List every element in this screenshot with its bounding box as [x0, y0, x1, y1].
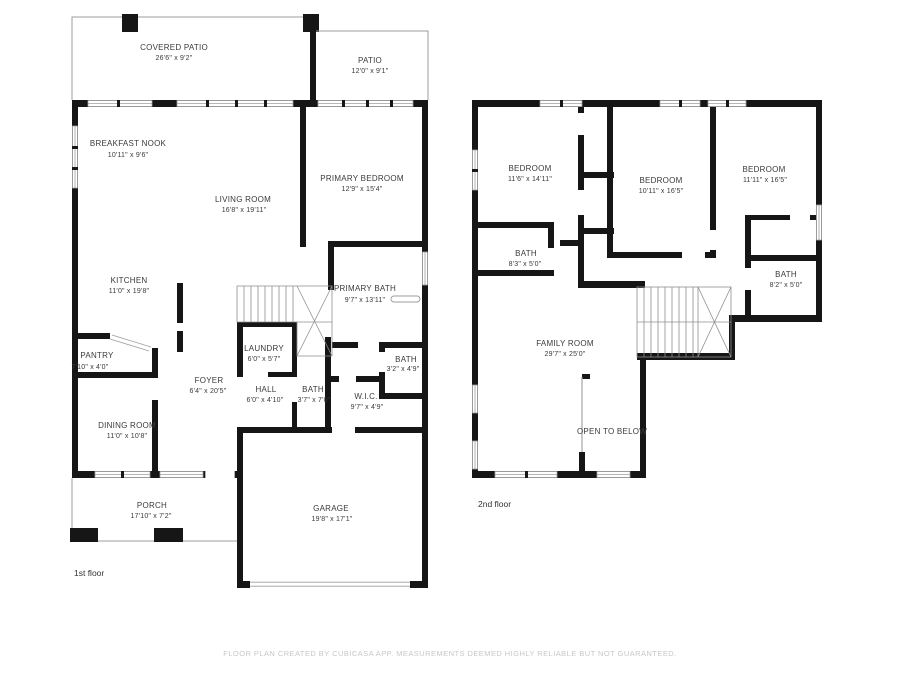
- room-dims-laundry: 6'0" x 5'7": [248, 356, 281, 363]
- room-dims-patio: 12'0" x 9'1": [352, 68, 389, 75]
- room-label-bath-right: BATH: [775, 270, 797, 279]
- porch-post: [154, 528, 183, 542]
- room-dims-family-room: 29'7" x 25'0": [545, 351, 586, 358]
- room-label-porch: PORCH: [137, 501, 167, 510]
- room-label-open-to-below: OPEN TO BELOW: [577, 427, 647, 436]
- footer-disclaimer: FLOOR PLAN CREATED BY CUBICASA APP. MEAS…: [223, 649, 676, 658]
- room-label-garage: GARAGE: [313, 504, 349, 513]
- room-dims-bath-left: 8'3" x 5'0": [509, 261, 542, 268]
- room-label-foyer: FOYER: [195, 376, 224, 385]
- room-dims-porch: 17'10" x 7'2": [131, 513, 172, 520]
- room-label-bedroom-mid: BEDROOM: [639, 176, 682, 185]
- stairs-second-floor: [637, 287, 731, 357]
- room-label-bath-left: BATH: [515, 249, 537, 258]
- second-floor-label: 2nd floor: [478, 499, 511, 509]
- room-dims-primary-bath: 9'7" x 13'11": [345, 297, 386, 304]
- room-label-living-room: LIVING ROOM: [215, 195, 271, 204]
- floor-plan-canvas: COVERED PATIO 26'6" x 9'2" PATIO 12'0" x…: [0, 0, 900, 675]
- room-dims-small-bath: 3'2" x 4'9": [387, 366, 420, 373]
- pantry-door: [110, 335, 151, 351]
- room-label-small-bath: BATH: [395, 355, 417, 364]
- room-label-pantry: PANTRY: [80, 351, 114, 360]
- shower-fixture: [391, 296, 420, 302]
- porch-outline: [70, 478, 237, 542]
- patio-post: [122, 14, 138, 32]
- room-label-bedroom-right: BEDROOM: [742, 165, 785, 174]
- porch-post: [70, 528, 98, 542]
- room-label-covered-patio: COVERED PATIO: [140, 43, 208, 52]
- room-dims-kitchen: 11'0" x 19'8": [109, 288, 150, 295]
- floor-plan-page: COVERED PATIO 26'6" x 9'2" PATIO 12'0" x…: [0, 0, 900, 675]
- windows-second-floor: [472, 100, 822, 478]
- room-label-bedroom-left: BEDROOM: [508, 164, 551, 173]
- room-dims-wic: 9'7" x 4'9": [351, 404, 384, 411]
- room-dims-garage: 19'8" x 17'1": [312, 516, 353, 523]
- covered-patio-outline: [72, 14, 319, 103]
- room-dims-bath: 3'7" x 7'0": [298, 397, 331, 404]
- room-label-family-room: FAMILY ROOM: [536, 339, 594, 348]
- room-label-bath: BATH: [302, 385, 324, 394]
- room-label-kitchen: KITCHEN: [111, 276, 148, 285]
- room-label-primary-bedroom: PRIMARY BEDROOM: [320, 174, 404, 183]
- first-floor-plan: COVERED PATIO 26'6" x 9'2" PATIO 12'0" x…: [70, 14, 428, 588]
- room-label-hall: HALL: [255, 385, 276, 394]
- room-label-laundry: LAUNDRY: [244, 344, 284, 353]
- labels-first-floor: COVERED PATIO 26'6" x 9'2" PATIO 12'0" x…: [72, 43, 420, 578]
- room-label-primary-bath: PRIMARY BATH: [334, 284, 396, 293]
- room-dims-pantry: 7'10" x 4'0": [72, 364, 109, 371]
- room-dims-covered-patio: 26'6" x 9'2": [156, 55, 193, 62]
- room-label-dining-room: DINING ROOM: [98, 421, 156, 430]
- first-floor-label: 1st floor: [74, 568, 104, 578]
- room-label-patio: PATIO: [358, 56, 382, 65]
- patio-outline: [316, 31, 428, 100]
- second-floor-plan: BEDROOM 11'6" x 14'11" BEDROOM 10'11" x …: [472, 100, 822, 509]
- room-dims-primary-bedroom: 12'9" x 15'4": [342, 186, 383, 193]
- front-door-opening: [205, 471, 235, 478]
- walls-second-floor: [472, 100, 822, 478]
- room-dims-breakfast-nook: 10'11" x 9'6": [108, 152, 149, 159]
- room-dims-bedroom-right: 11'11" x 16'5": [743, 177, 787, 184]
- room-dims-dining-room: 11'0" x 10'8": [107, 433, 148, 440]
- room-dims-living-room: 16'8" x 19'11": [222, 207, 267, 214]
- room-label-wic: W.I.C.: [354, 392, 377, 401]
- room-dims-hall: 6'0" x 4'10": [247, 397, 284, 404]
- room-dims-bath-right: 8'2" x 5'0": [770, 282, 803, 289]
- room-dims-bedroom-left: 11'6" x 14'11": [508, 176, 552, 183]
- room-dims-foyer: 6'4" x 20'5": [190, 388, 227, 395]
- room-dims-bedroom-mid: 10'11" x 16'5": [639, 188, 684, 195]
- room-label-breakfast-nook: BREAKFAST NOOK: [90, 139, 167, 148]
